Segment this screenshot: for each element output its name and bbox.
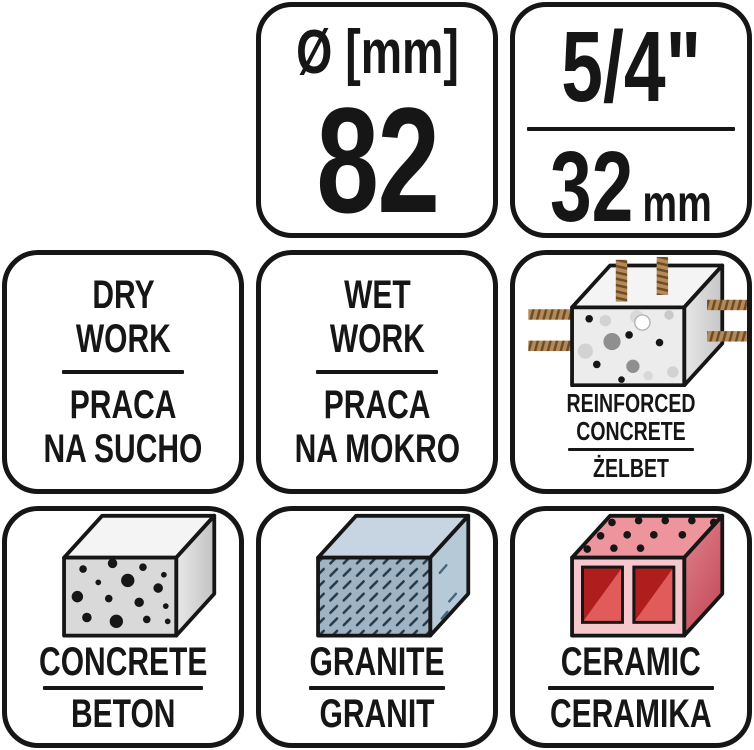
- connector-inch-value: 5/4": [561, 15, 701, 119]
- concrete-cell: CONCRETE BETON: [2, 506, 244, 748]
- granite-cell: GRANITE GRANIT: [256, 506, 498, 748]
- ceramic-label-pl: CERAMIKA: [550, 693, 712, 735]
- concrete-label-pl: BETON: [39, 693, 207, 735]
- reinforced-label-en-2: CONCRETE: [567, 417, 696, 445]
- connector-mm-value: 32: [550, 131, 633, 238]
- connector-spec-cell: 5/4" 32mm: [510, 2, 752, 238]
- diameter-spec-cell: Ø [mm] 82: [256, 2, 498, 238]
- concrete-block-icon: [7, 512, 239, 639]
- granite-label-pl: GRANIT: [310, 693, 445, 735]
- concrete-label-en: CONCRETE: [39, 641, 207, 683]
- reinforced-concrete-cell: REINFORCED CONCRETE ŻELBET: [510, 250, 752, 494]
- empty-cell: [2, 2, 244, 238]
- diameter-value: 82: [316, 89, 438, 232]
- reinforced-concrete-icon: [515, 256, 747, 387]
- wet-work-label-pl-2: NA MOKRO: [294, 427, 460, 471]
- dry-work-cell: DRY WORK PRACA NA SUCHO: [2, 250, 244, 494]
- dry-work-label-pl-1: PRACA: [70, 383, 177, 427]
- granite-block-icon: [261, 512, 493, 639]
- reinforced-label-en-1: REINFORCED: [567, 389, 696, 417]
- divider-line: [62, 370, 184, 374]
- dry-work-label-en-2: WORK: [76, 317, 171, 361]
- connector-mm-unit: mm: [643, 175, 712, 233]
- divider-line: [548, 686, 714, 690]
- divider-line: [568, 448, 694, 451]
- ceramic-cell: CERAMIC CERAMIKA: [510, 506, 752, 748]
- wet-work-label-en-2: WORK: [330, 317, 425, 361]
- wet-work-label-en-1: WET: [344, 273, 411, 317]
- dry-work-label-en-1: DRY: [92, 273, 154, 317]
- granite-labels: GRANITE GRANIT: [287, 641, 467, 735]
- wet-work-label-pl-1: PRACA: [324, 383, 431, 427]
- divider-line: [43, 686, 203, 690]
- reinforced-label-pl: ŻELBET: [567, 454, 696, 482]
- ceramic-hollow-brick-icon: [515, 512, 747, 639]
- pictogram-grid: Ø [mm] 82 5/4" 32mm DRY WORK PRACA NA SU…: [0, 0, 754, 750]
- reinforced-concrete-labels: REINFORCED CONCRETE ŻELBET: [545, 389, 717, 482]
- divider-line: [316, 370, 438, 374]
- concrete-labels: CONCRETE BETON: [11, 641, 235, 735]
- ceramic-labels: CERAMIC CERAMIKA: [523, 641, 739, 735]
- ceramic-label-en: CERAMIC: [550, 641, 712, 683]
- granite-label-en: GRANITE: [310, 641, 445, 683]
- dry-work-label-pl-2: NA SUCHO: [44, 427, 203, 471]
- divider-line: [309, 686, 445, 690]
- wet-work-cell: WET WORK PRACA NA MOKRO: [256, 250, 498, 494]
- connector-mm-line: 32mm: [550, 135, 712, 238]
- pictogram-sheet: Ø [mm] 82 5/4" 32mm DRY WORK PRACA NA SU…: [0, 0, 754, 750]
